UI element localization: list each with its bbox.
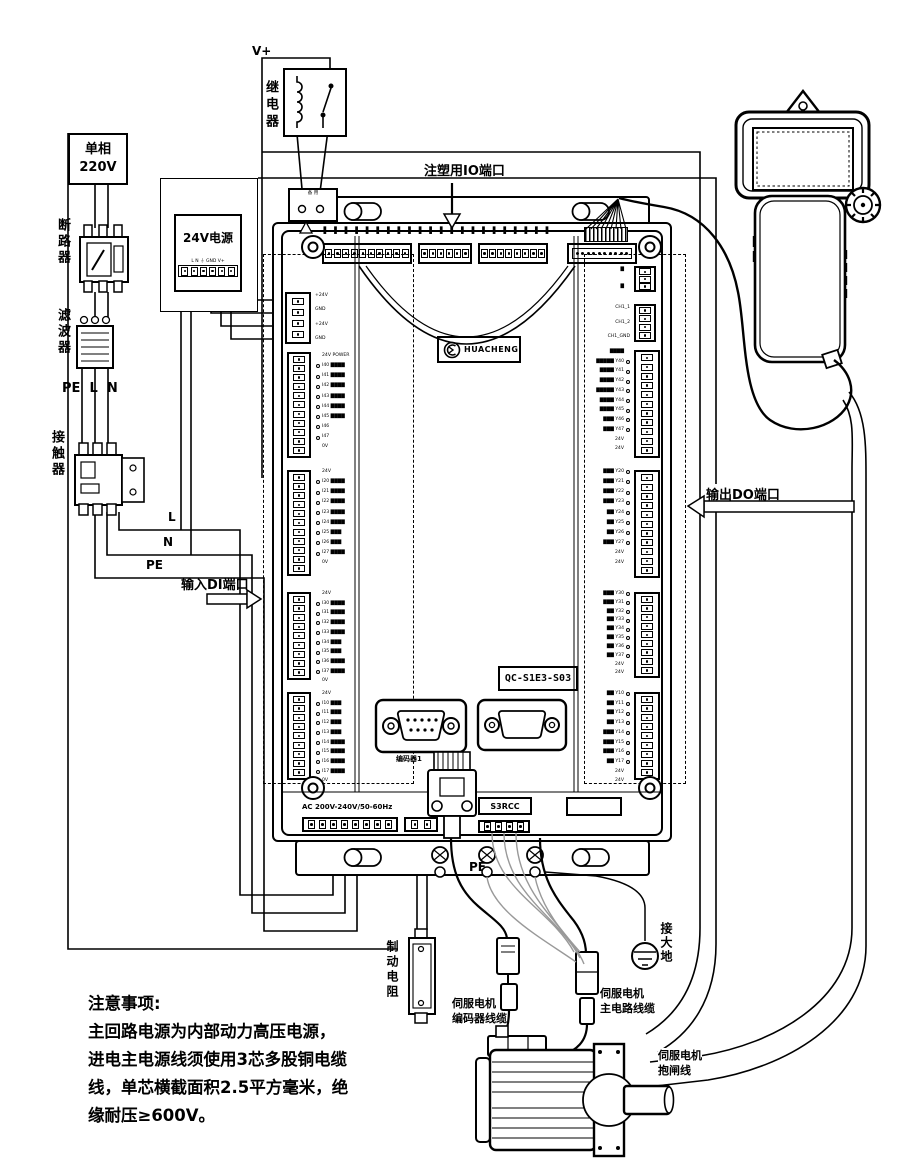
encoder-plug [428, 752, 476, 838]
keyhole-slots [345, 203, 610, 866]
ground-posts [432, 847, 543, 877]
io-port-arrow [444, 214, 460, 228]
face-seams [281, 236, 663, 792]
di-port-arrow [247, 590, 261, 608]
db9-comm-port [478, 700, 566, 750]
pendant-handle [755, 196, 845, 362]
brake-resistor-icon [409, 929, 435, 1023]
spare-terminals [299, 206, 324, 234]
db9-encoder-port [376, 700, 466, 752]
wiring-diagram: 单相 220V 断路器 滤波器 PE L N 接触器 L N PE V+ 继电器… [0, 0, 900, 1174]
earth-symbol [545, 872, 658, 969]
motor-shaft [624, 1086, 670, 1114]
face-arc-inner [366, 266, 568, 337]
filter-icon [77, 317, 113, 369]
pendant [736, 91, 880, 368]
servo-motor [476, 1026, 674, 1156]
pendant-screen [753, 128, 853, 190]
do-port-arrow [688, 496, 704, 517]
graphics-layer [0, 0, 900, 1174]
face-arc-outer [359, 266, 575, 344]
breaker-icon [80, 225, 128, 292]
up-arrow-icon [300, 222, 312, 233]
contactor-icon [75, 443, 144, 515]
relay-icon [297, 76, 333, 128]
